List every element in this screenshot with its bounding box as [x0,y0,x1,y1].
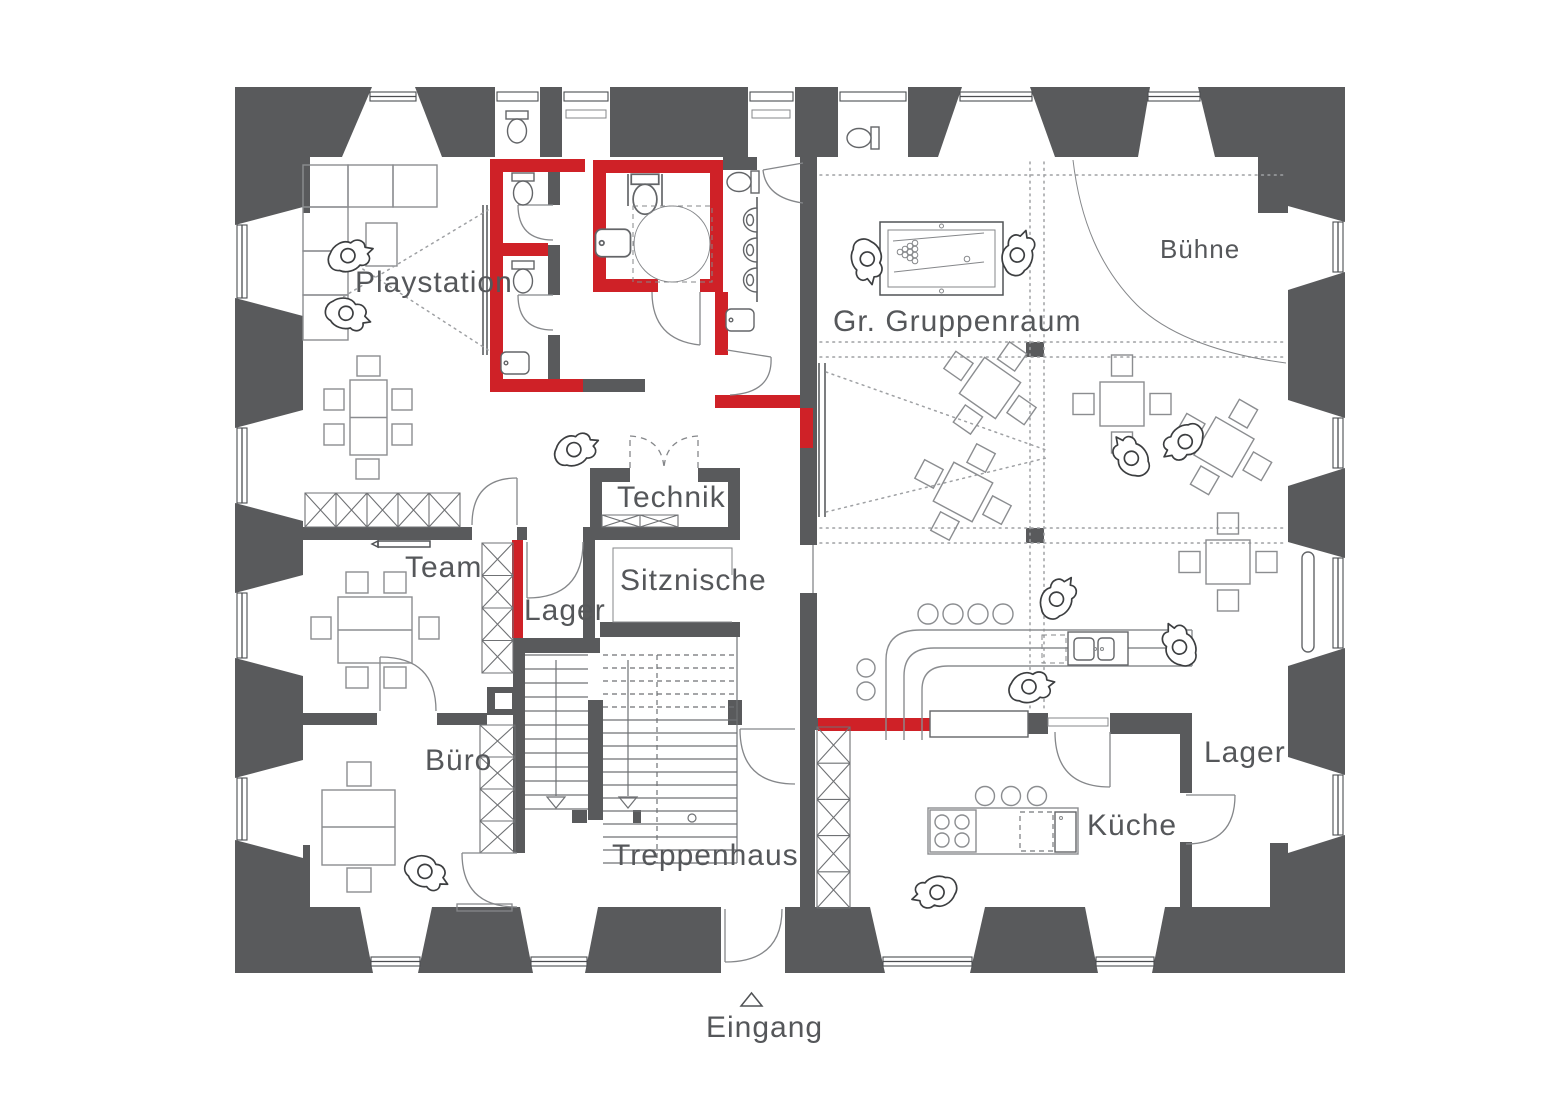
stool [1002,787,1021,806]
wheelchair-turning-circle [634,206,710,282]
room-label-playstation: Playstation [355,266,513,299]
toilet-icon [512,173,534,205]
floor-plan-page: Playstation Gr. Gruppenraum Bühne Team L… [0,0,1556,1100]
triangle-up-icon [741,993,762,1006]
tv-table [366,223,397,266]
urinal-icon [744,208,758,232]
urinal-icon [744,238,758,262]
toilet-icon [847,127,879,149]
person-icon [1155,417,1210,470]
room-label-kueche: Küche [1087,809,1177,842]
room-label-lager-rechts: Lager [1204,736,1286,769]
whiteboard-marker [378,541,430,547]
person-icon [847,235,888,288]
bar-stool [918,604,938,624]
sink-icon [596,229,631,257]
person-icon [1005,666,1058,707]
table-with-chairs [1073,355,1171,453]
person-icon [1154,617,1203,672]
billiard-table [880,222,1003,295]
sink-icon [726,309,754,331]
room-label-team: Team [405,551,482,584]
table-with-chairs [897,426,1030,559]
island-sink [1055,812,1076,852]
toilet-icon [512,261,534,293]
entrance-marker [741,993,762,1006]
staircase [525,637,737,863]
room-label-treppenhaus: Treppenhaus [612,839,799,872]
bar-stool [857,682,875,700]
toilet-icon [727,171,759,193]
bar-stool [993,604,1013,624]
person-icon [322,294,375,335]
sink-icon [501,352,529,374]
dishwasher [1020,812,1053,851]
room-label-buehne: Bühne [1160,234,1240,264]
room-label-technik: Technik [617,481,726,514]
radiator [1302,552,1314,652]
bar-stool [857,659,875,677]
projection-screen [819,363,825,517]
person-icon [400,850,455,897]
urinal-icon [744,268,758,292]
toilet-icon [506,111,528,143]
bar-stool [968,604,988,624]
room-label-gruppenraum: Gr. Gruppenraum [833,305,1081,338]
kitchen-furniture [928,711,1108,854]
pass-through-counter [930,711,1028,737]
person-icon [998,226,1039,279]
bar-stool [943,604,963,624]
stool [1028,787,1047,806]
stair-direction-arrow [547,797,565,808]
room-label-lager-mitte: Lager [524,594,606,627]
dining-table [324,356,412,479]
accessible-toilet-icon [631,174,659,214]
label-eingang: Eingang [706,1011,823,1044]
room-buero-furniture [322,762,395,892]
stair-direction-arrow [619,797,637,808]
floor-plan-canvas: Playstation Gr. Gruppenraum Bühne Team L… [0,0,1556,1100]
room-label-buero: Büro [425,744,492,777]
room-label-sitznische: Sitznische [620,564,767,597]
person-icon [1034,569,1083,624]
person-icon [549,425,604,472]
stool [976,787,995,806]
table-with-chairs [922,320,1058,456]
technik-double-door [630,436,698,468]
billiard-balls [897,240,970,264]
